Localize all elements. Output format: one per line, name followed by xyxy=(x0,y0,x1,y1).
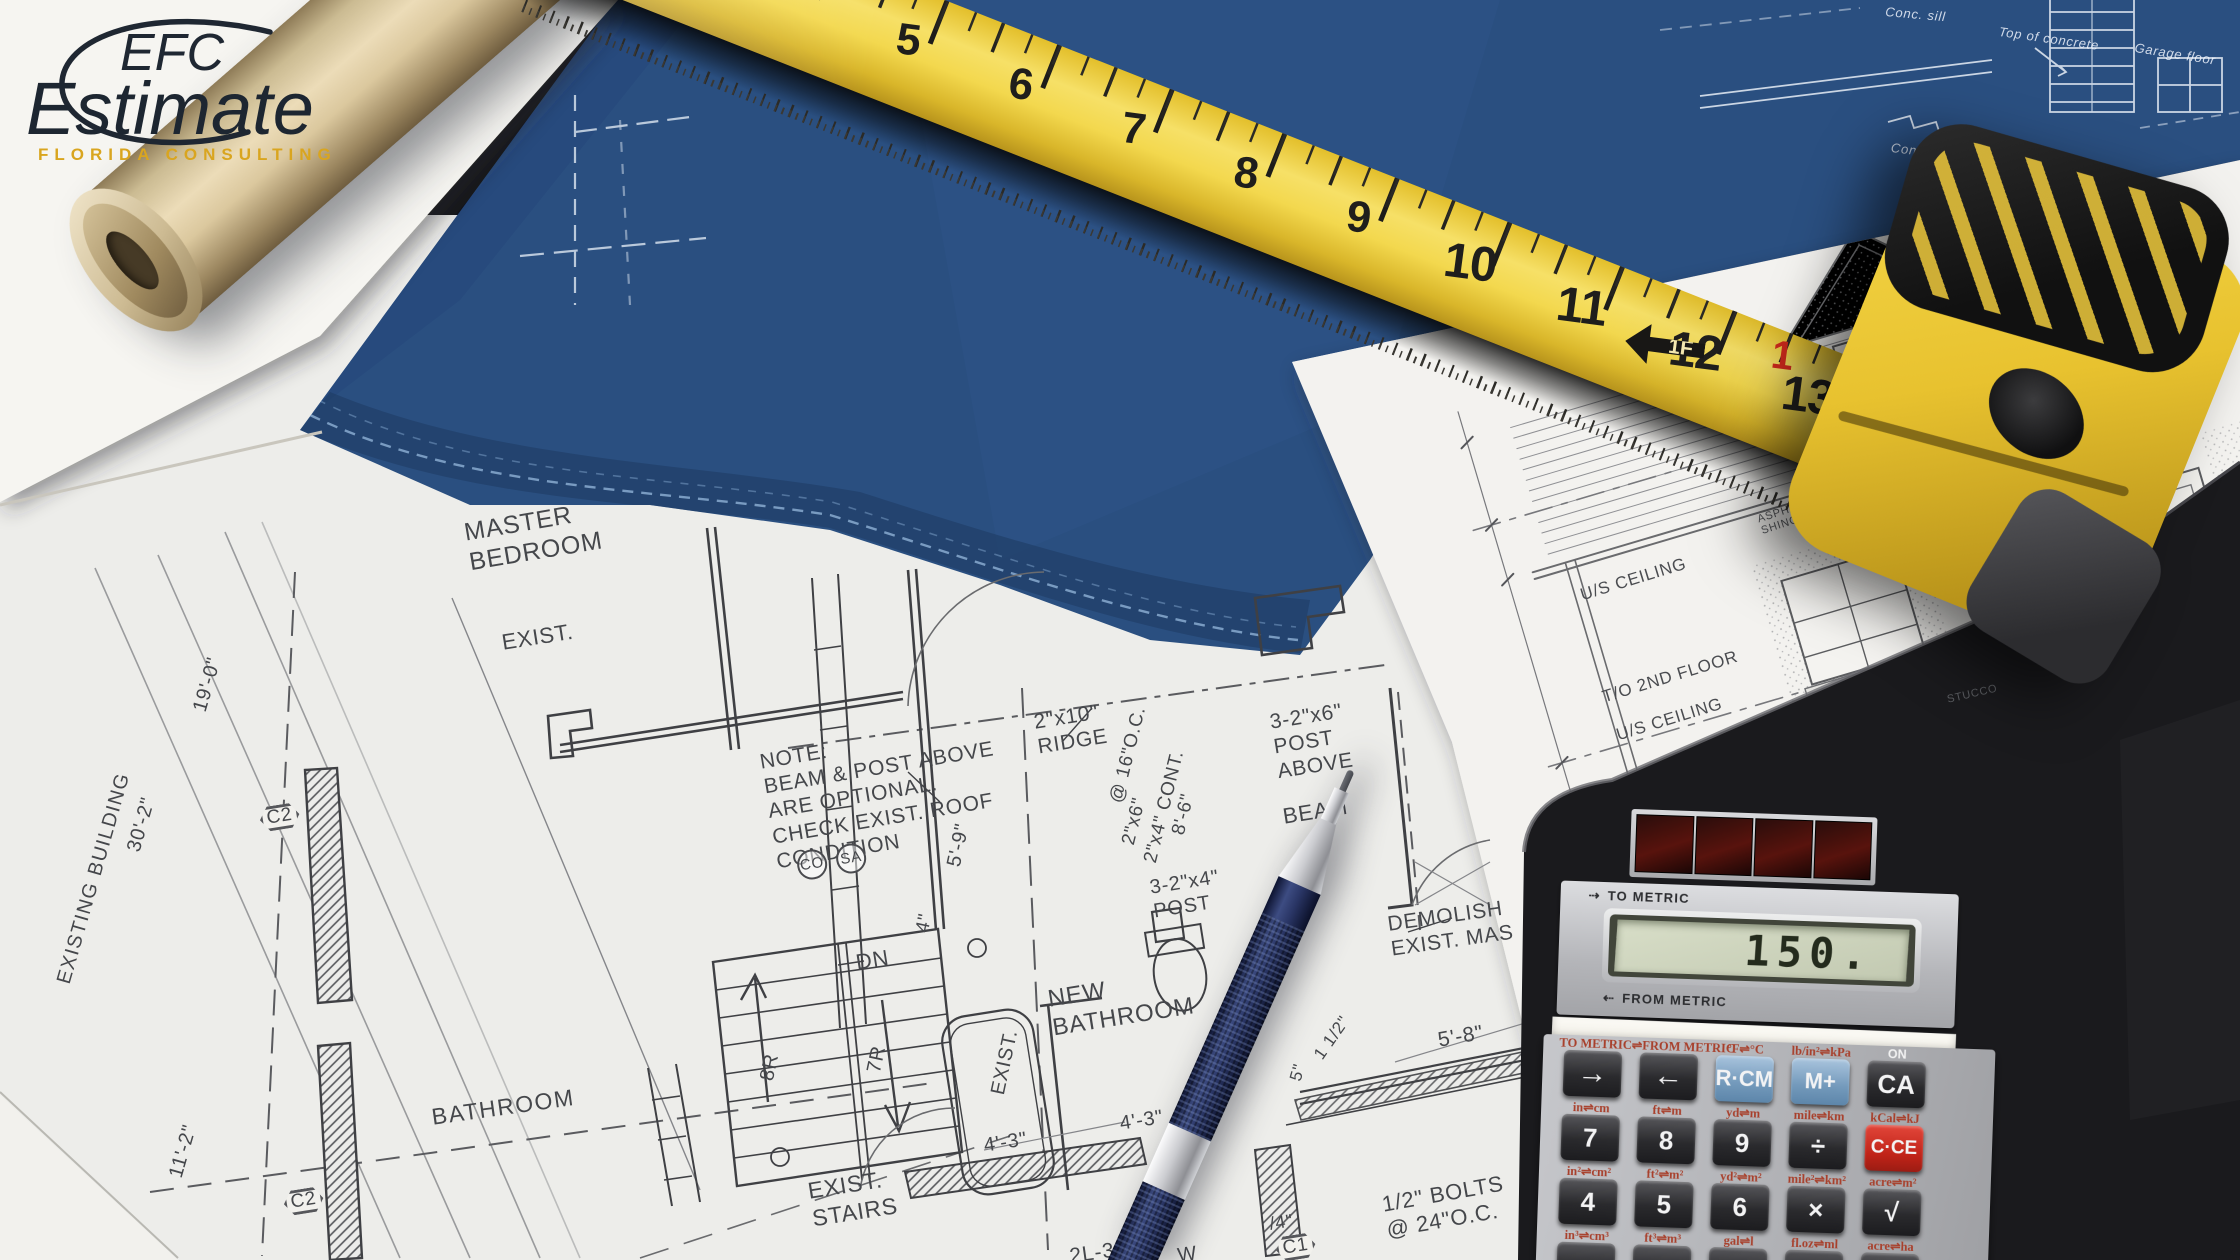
calculator: ⇢TO METRIC 150. ⇠FROM METRIC TO METRIC⇌F… xyxy=(1532,798,2028,1260)
lcd-display: 150. xyxy=(1614,920,1909,982)
logo-tagline: FLORIDA CONSULTING xyxy=(38,145,337,165)
lcd-frame: 150. xyxy=(1602,908,1922,993)
key-arrow-right: → xyxy=(1563,1050,1623,1098)
display-plate: ⇢TO METRIC 150. ⇠FROM METRIC xyxy=(1556,881,1958,1029)
key-rcm: R·CM xyxy=(1715,1055,1775,1103)
key-8: 8 xyxy=(1636,1116,1696,1164)
key-partial xyxy=(1708,1247,1768,1260)
logo-name: Estimate xyxy=(26,67,314,150)
key-partial xyxy=(1860,1252,1920,1260)
key-4: 4 xyxy=(1558,1178,1618,1226)
solar-panel xyxy=(1629,809,1877,886)
key-divide: ÷ xyxy=(1788,1122,1848,1170)
key-partial xyxy=(1556,1242,1616,1260)
keypad: TO METRIC⇌FROM METRIC °F⇌°C lb/in²⇌kPa O… xyxy=(1526,1034,1996,1260)
key-6: 6 xyxy=(1710,1183,1770,1231)
to-metric-label: ⇢TO METRIC xyxy=(1588,887,1690,907)
key-7: 7 xyxy=(1560,1114,1620,1162)
to-metric-text: TO METRIC xyxy=(1607,888,1690,906)
efc-logo: EFC Estimate FLORIDA CONSULTING xyxy=(8,4,368,204)
to-metric-arrow-icon: ⇢ xyxy=(1588,887,1601,902)
key-partial xyxy=(1784,1250,1844,1260)
photo-construction-blueprints: MASTER BEDROOM EXIST. NOTE: BEAM & POST … xyxy=(0,0,2240,1260)
from-metric-text: FROM METRIC xyxy=(1622,991,1727,1010)
key-9: 9 xyxy=(1712,1119,1772,1167)
key-partial xyxy=(1632,1244,1692,1260)
key-ca: CA xyxy=(1866,1060,1926,1108)
lcd-value: 150. xyxy=(1743,926,1875,979)
pencil-tip-sleeve xyxy=(1321,787,1349,825)
tape-number: 11 xyxy=(1553,276,1610,338)
from-metric-arrow-icon: ⇠ xyxy=(1603,990,1616,1005)
key-5: 5 xyxy=(1634,1180,1694,1228)
key-multiply: × xyxy=(1786,1186,1846,1234)
key-cce: C·CE xyxy=(1864,1124,1924,1172)
tape-number: 10 xyxy=(1440,232,1499,294)
pencil-lead xyxy=(1339,769,1354,792)
from-metric-label: ⇠FROM METRIC xyxy=(1603,990,1727,1010)
key-mplus: M+ xyxy=(1790,1058,1850,1106)
key-arrow-left: ← xyxy=(1639,1052,1699,1100)
key-sqrt: √ xyxy=(1862,1188,1922,1236)
